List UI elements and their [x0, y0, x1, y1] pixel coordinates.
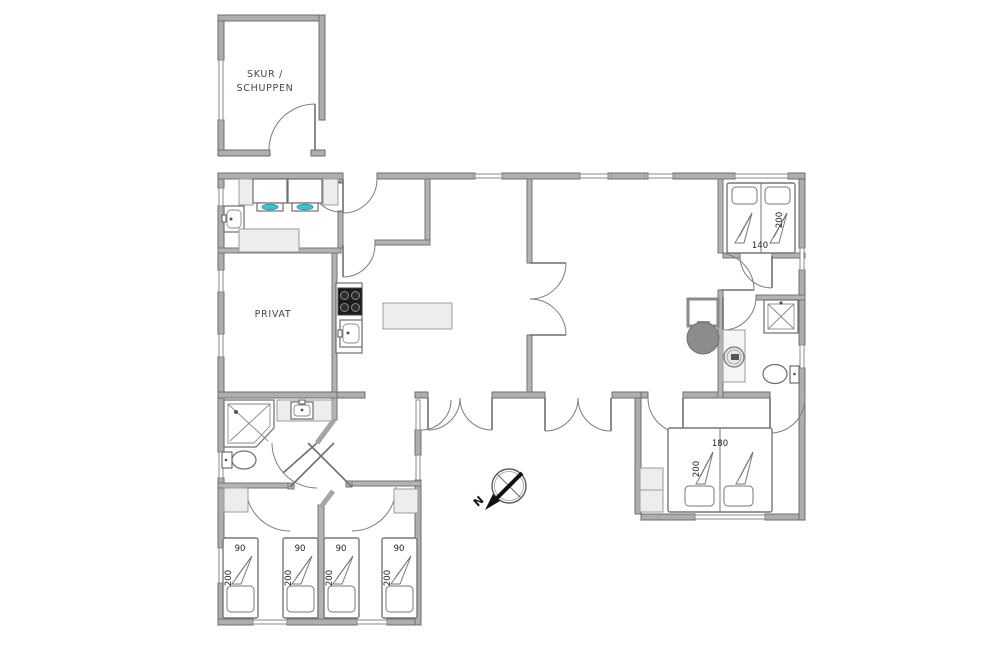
bed-width-label: 90	[336, 544, 347, 554]
wardrobe	[394, 489, 418, 513]
privat-label: PRIVAT	[255, 309, 292, 320]
bed-width-label: 90	[394, 544, 405, 554]
bed-length-label: 200	[284, 570, 294, 586]
washing-machine-icon	[253, 179, 287, 211]
shed-label-line2: SCHUPPEN	[237, 83, 294, 94]
bed-length-label: 200	[692, 461, 702, 477]
bed-single-4: 90 200	[382, 538, 417, 618]
bed-length-label: 200	[325, 570, 335, 586]
toilet-icon	[222, 451, 256, 469]
compass-north-label: N	[471, 493, 487, 509]
floor-plan-page: 140 200 180 200 90 200 90 200 90	[0, 0, 1000, 667]
bed-width-label: 180	[712, 439, 728, 449]
washbasin-icon	[723, 330, 745, 382]
utility-sink-icon	[222, 206, 244, 232]
shed-label-line1: SKUR /	[247, 69, 283, 80]
bed-width-label: 140	[752, 241, 768, 251]
toilet-icon	[763, 365, 799, 384]
dryer-icon	[288, 179, 322, 211]
kitchen	[336, 283, 452, 353]
cabinet	[640, 468, 663, 490]
bed-length-label: 200	[775, 212, 785, 228]
wardrobes	[224, 468, 663, 513]
bed-single-2: 90 200	[283, 538, 318, 618]
counter	[239, 229, 299, 252]
bed-width-label: 90	[295, 544, 306, 554]
cabinet	[640, 490, 663, 512]
counter	[239, 179, 253, 205]
washbasin-icon	[277, 400, 332, 421]
stove-icon	[338, 288, 362, 315]
shower-icon	[224, 400, 274, 447]
wardrobe	[224, 488, 248, 512]
kitchen-sink-icon	[338, 320, 362, 347]
bathroom-left	[222, 400, 332, 469]
bed-single-3: 90 200	[324, 538, 359, 618]
bed-single-1: 90 200	[223, 538, 258, 618]
floor-plan: 140 200 180 200 90 200 90 200 90	[0, 0, 1000, 667]
kitchen-island	[383, 303, 452, 329]
compass-icon: N	[471, 469, 526, 510]
shower-icon	[764, 300, 798, 333]
fireplace-icon	[687, 299, 719, 354]
bed-double-180: 180 200	[668, 428, 772, 512]
bed-length-label: 200	[224, 570, 234, 586]
bed-length-label: 200	[383, 570, 393, 586]
bed-double-140: 140 200	[727, 183, 795, 253]
bed-width-label: 90	[235, 544, 246, 554]
counter	[323, 179, 338, 205]
bathroom-right	[723, 300, 799, 384]
utility-room	[222, 179, 338, 252]
